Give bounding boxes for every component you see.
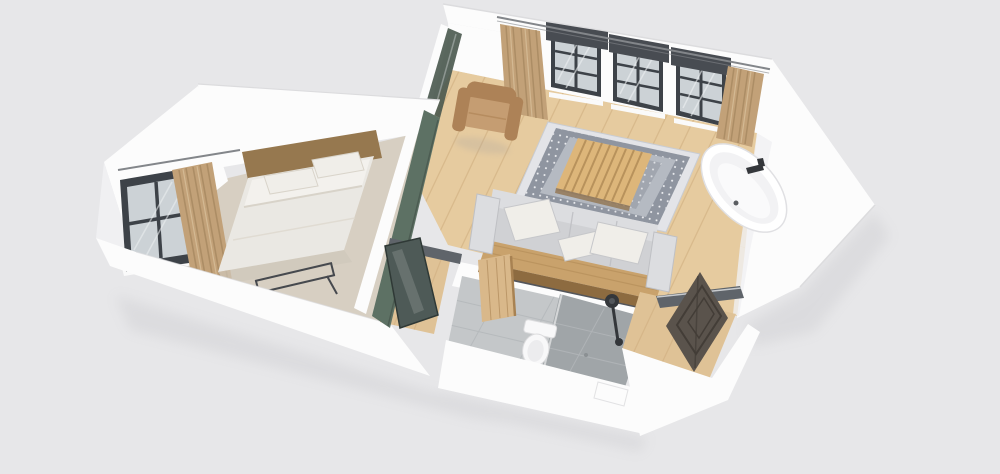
apartment-3d-floorplan: [0, 0, 1000, 474]
floor-plan-render: [0, 0, 1000, 474]
shower-drain: [584, 353, 588, 357]
tub-drain: [734, 201, 739, 206]
bathroom-door: [478, 254, 515, 322]
